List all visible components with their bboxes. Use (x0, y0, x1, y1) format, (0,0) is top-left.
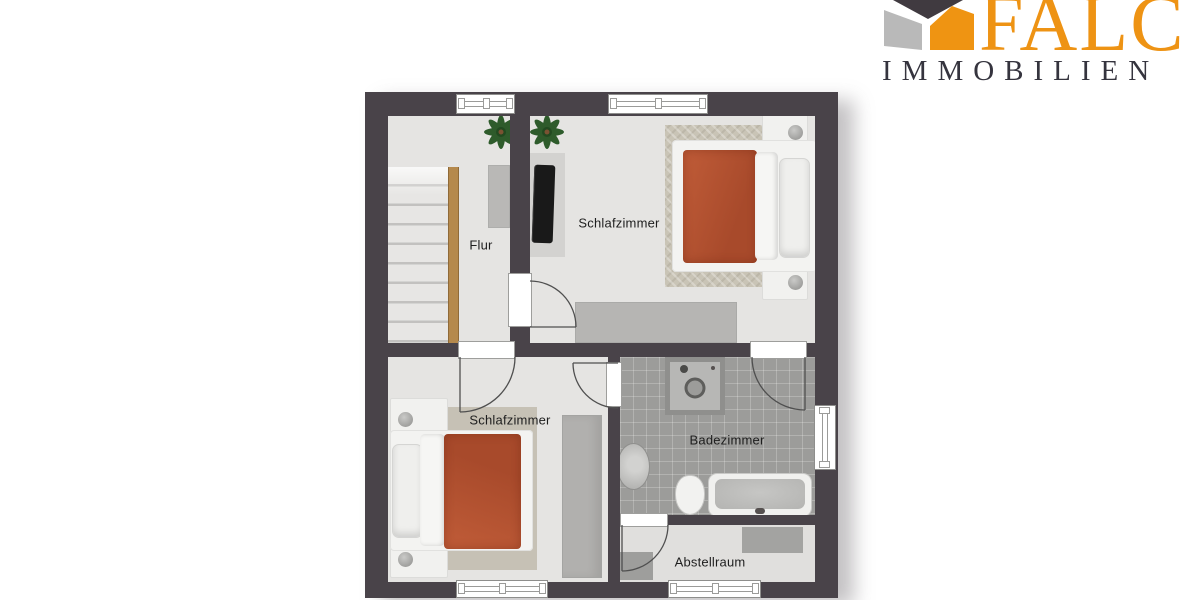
falc-logo: FALC IMMOBILIEN (878, 0, 1200, 94)
room-label-flur: Flur (469, 238, 492, 253)
room-label-badezimmer: Badezimmer (690, 433, 765, 448)
door-arc (460, 357, 515, 412)
door-arc (622, 525, 668, 571)
door-swing-overlay (365, 92, 838, 598)
door-arc (530, 281, 576, 327)
door-arc (573, 363, 618, 408)
room-label-abstellraum: Abstellraum (675, 555, 746, 570)
door-arc (752, 357, 805, 410)
room-label-schlafzimmer-top: Schlafzimmer (578, 216, 659, 231)
logo-subtitle-text: IMMOBILIEN (882, 57, 1159, 86)
falc-house-icon (878, 0, 978, 52)
room-label-schlafzimmer-bottom: Schlafzimmer (469, 413, 550, 428)
floor-plan: Flur Schlafzimmer Schlafzimmer Badezimme… (365, 92, 838, 598)
